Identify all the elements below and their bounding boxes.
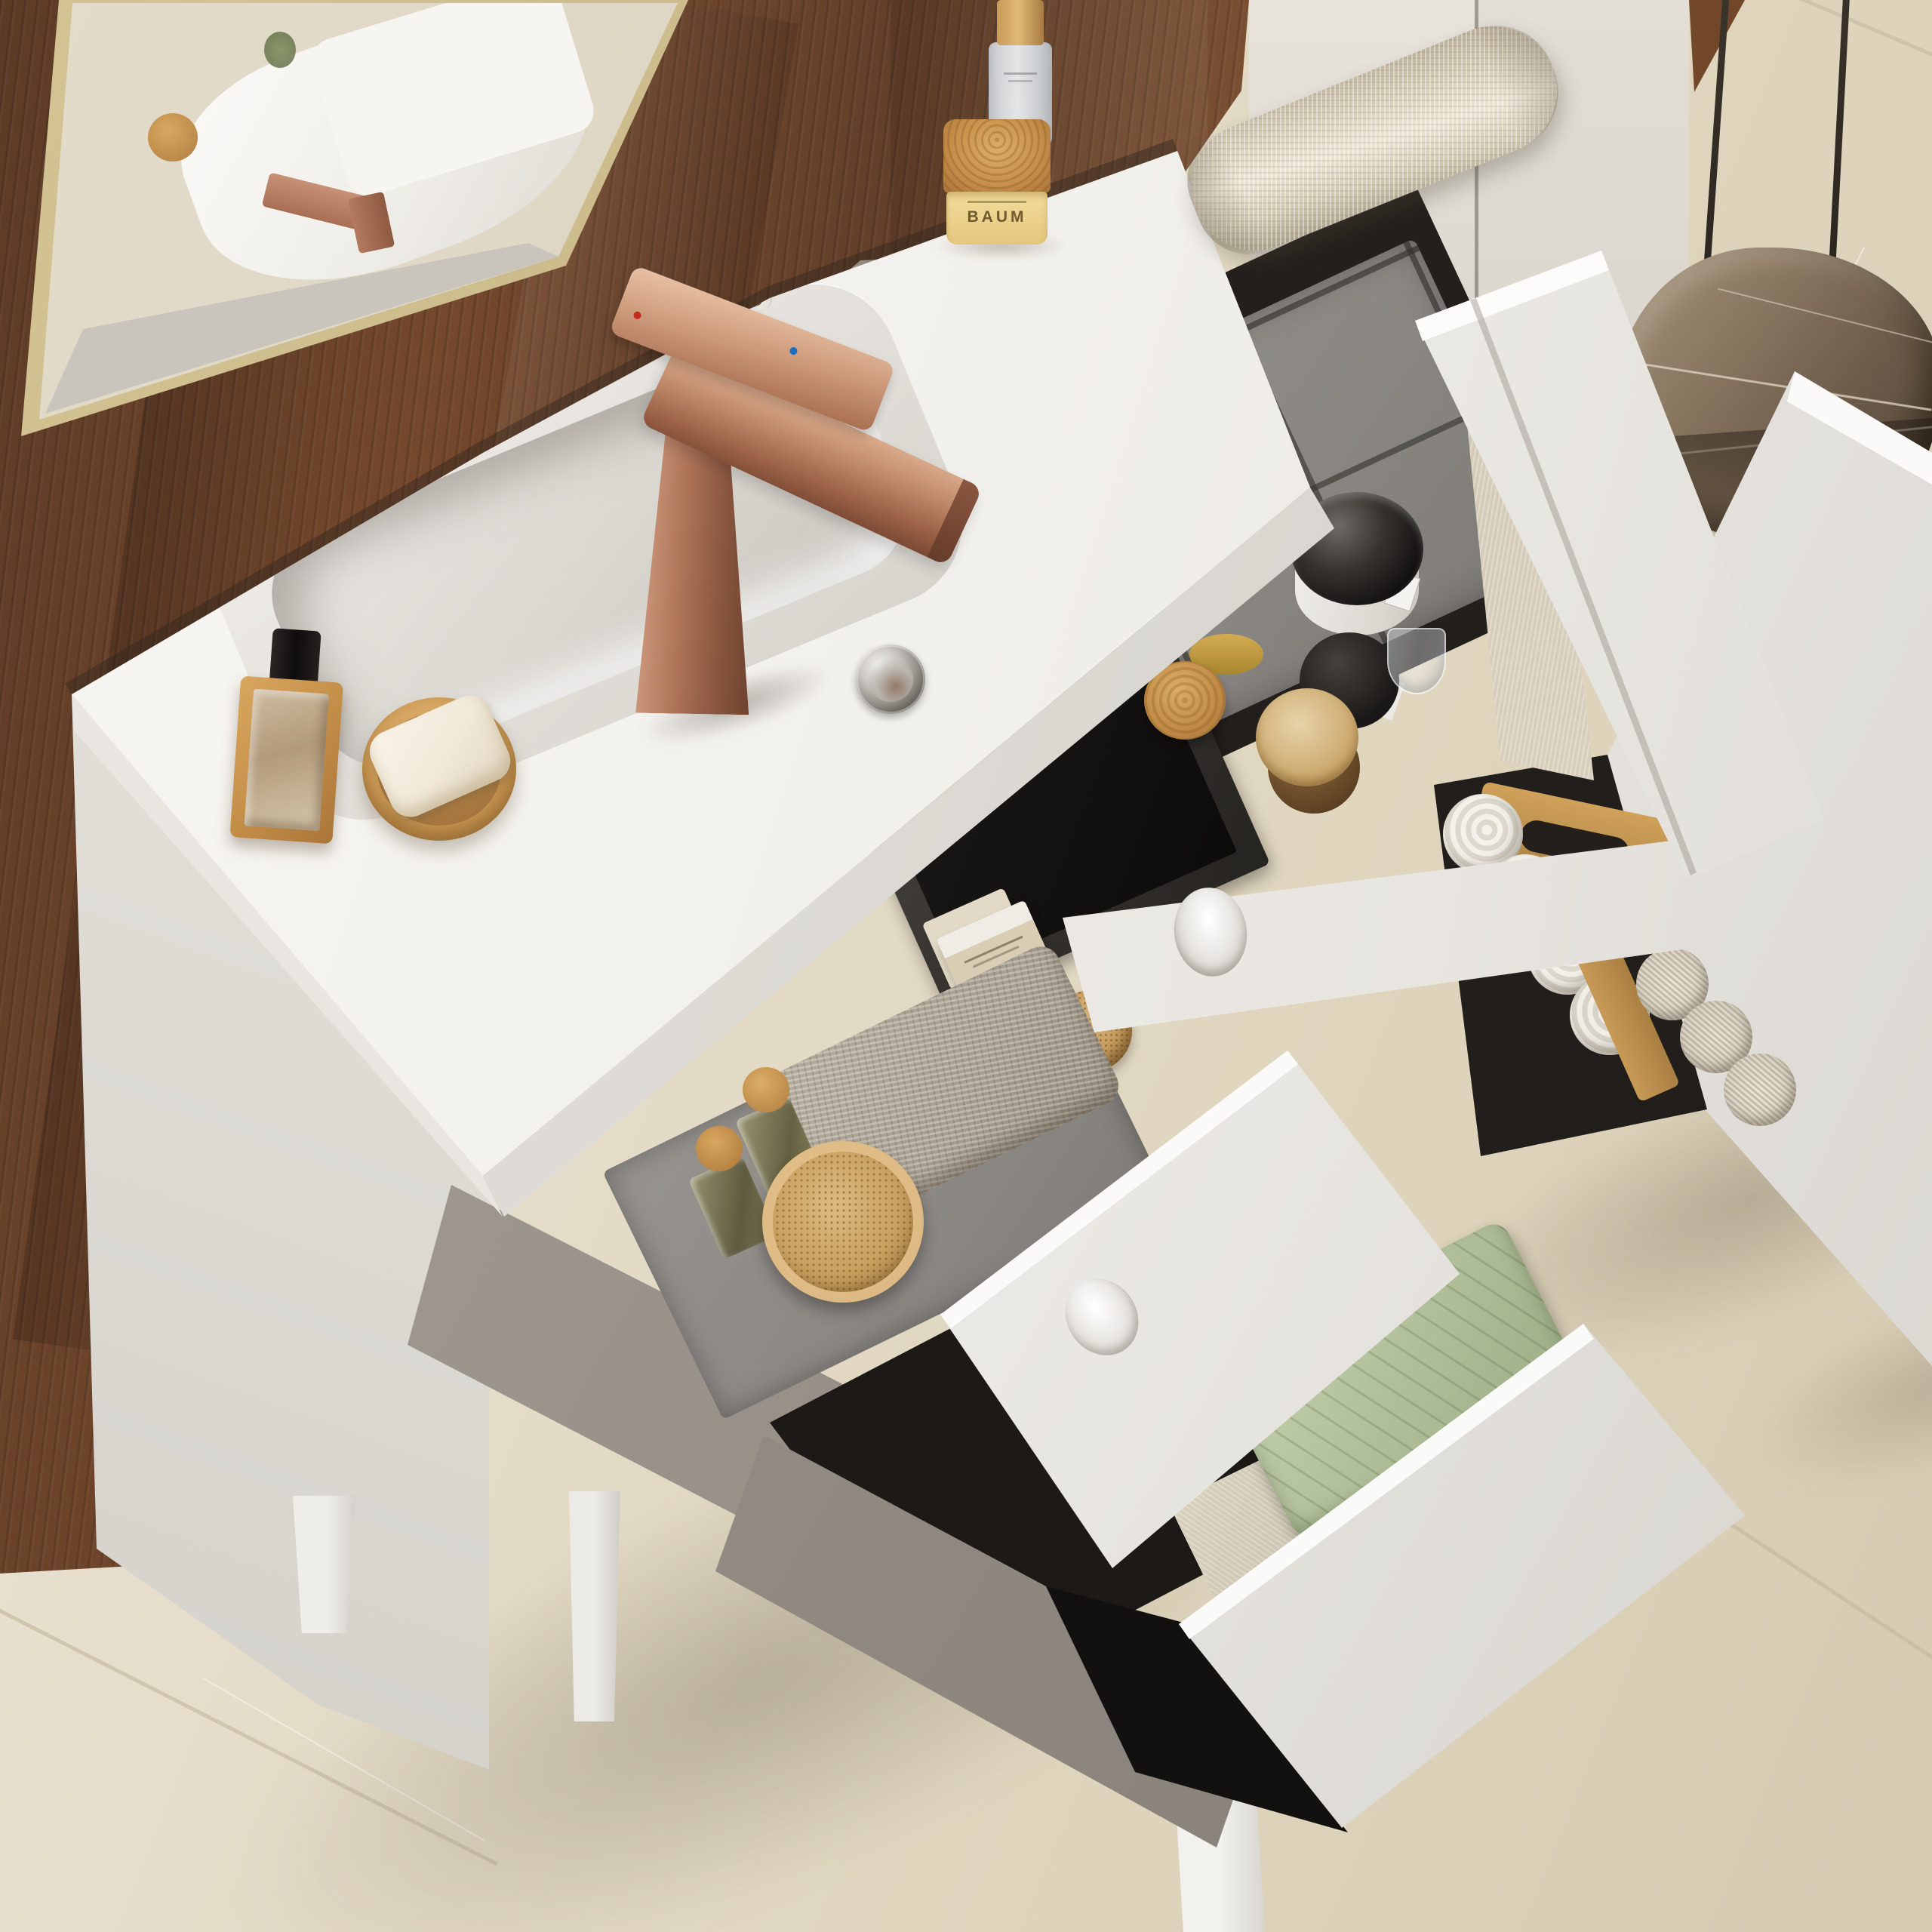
amber-glass-jar	[1256, 688, 1369, 815]
rock-crack	[1718, 288, 1932, 345]
vanity-leg	[569, 1491, 620, 1721]
vanity-leg	[293, 1496, 356, 1633]
baum-jar-small-text-line	[968, 201, 1026, 203]
cold-indicator-dot	[789, 346, 798, 356]
perfume-bottle-frame	[229, 675, 343, 844]
bottle-label-line	[1004, 72, 1037, 75]
bottle-wood-ball-cap	[743, 1067, 789, 1112]
round-body-brush	[762, 1141, 924, 1303]
baum-jar-body: BAUM	[946, 192, 1048, 245]
glass-bottle-wood-cap	[667, 1120, 780, 1263]
perfume-bottle-glass	[244, 689, 328, 832]
baum-cream-jar: BAUM	[943, 119, 1051, 248]
bathroom-scene: BAUM	[0, 0, 1932, 1932]
drain-cap-reflection	[868, 657, 913, 702]
bottle-wooden-cap	[997, 0, 1044, 45]
soap-dish	[362, 697, 516, 841]
rock-crack	[1617, 358, 1932, 411]
waffle-rolled-towel	[1724, 1054, 1796, 1126]
glass-cup	[1387, 628, 1446, 694]
mirror-reflection-plant	[264, 32, 296, 68]
perfume-bottle-wood-frame	[229, 626, 346, 844]
hot-indicator-dot	[632, 310, 642, 320]
chrome-drain-cap	[856, 645, 925, 714]
amber-jar-wood-lid	[1256, 688, 1358, 786]
mirror-reflection-wooden-lid	[148, 113, 198, 162]
baum-jar-label-text: BAUM	[946, 208, 1048, 226]
baum-jar-wooden-lid	[943, 119, 1051, 193]
bottle-label-line	[1008, 80, 1032, 82]
bottle-wood-ball-cap	[696, 1126, 743, 1171]
